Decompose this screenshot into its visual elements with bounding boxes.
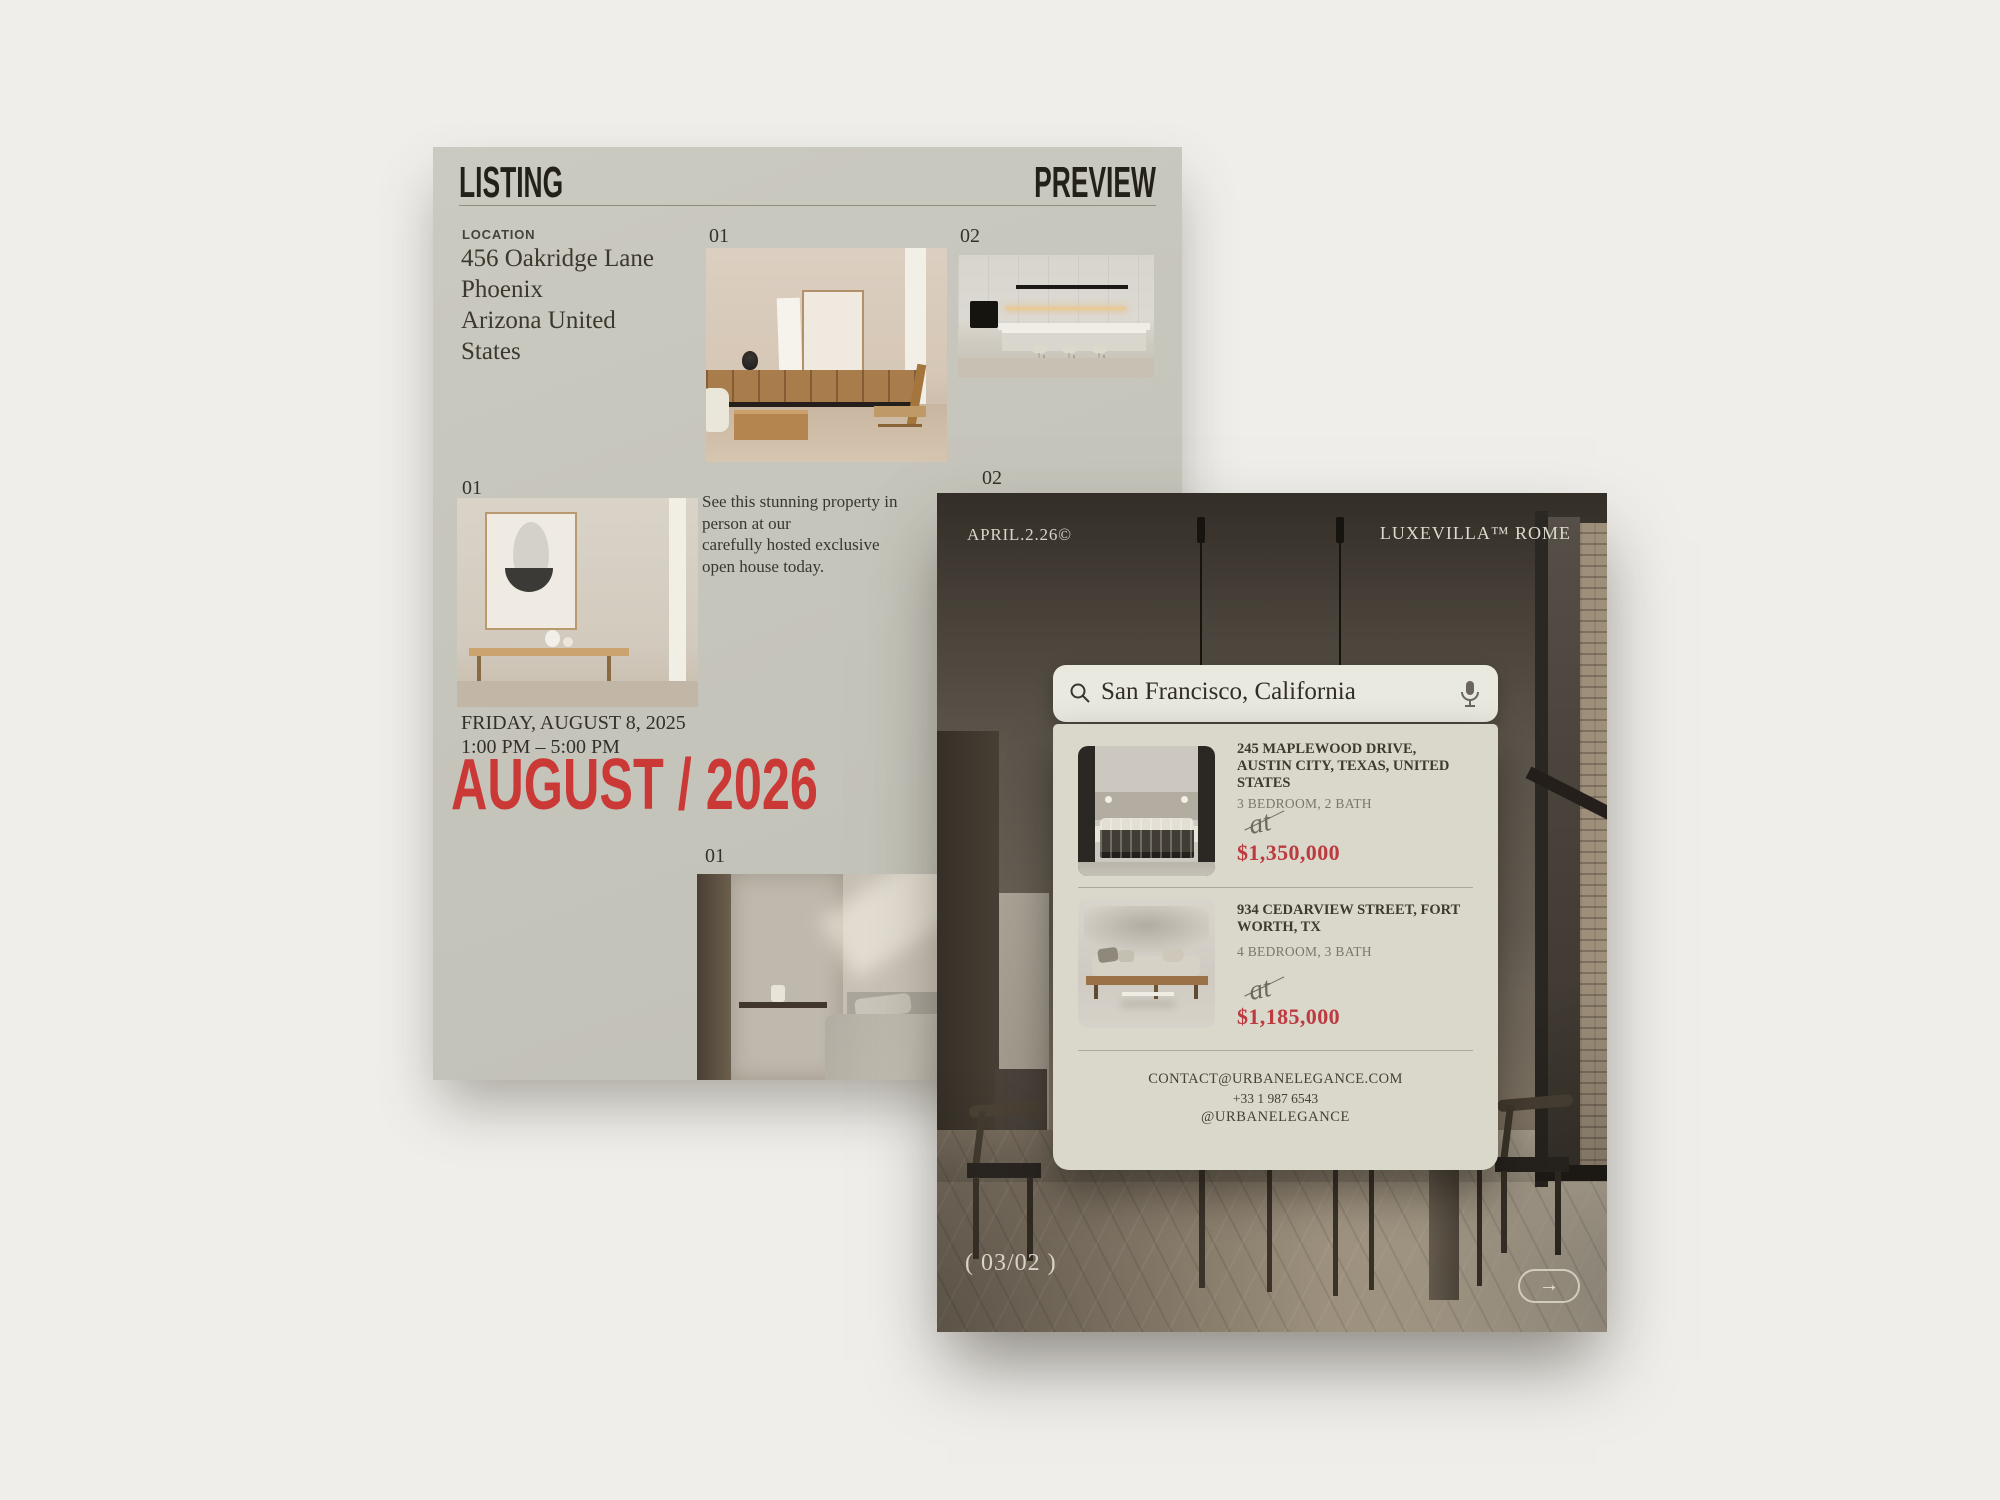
listing-address[interactable]: 934 CEDARVIEW STREET, FORT WORTH, TX — [1237, 902, 1487, 936]
open-house-description: See this stunning property in person at … — [702, 491, 944, 577]
row-divider — [1078, 887, 1473, 888]
row-divider — [1078, 1050, 1473, 1051]
figure-label-living-room: 01 — [709, 225, 729, 248]
property-app-card: APRIL.2.26© LUXEVILLA™ ROME San Francisc… — [937, 493, 1607, 1332]
photo-kitchen — [958, 255, 1154, 378]
photo-living-room — [706, 248, 947, 462]
contact-handle: @URBANELEGANCE — [1053, 1108, 1498, 1127]
header-divider — [459, 205, 1156, 206]
flyer-title-preview: PREVIEW — [1034, 161, 1156, 205]
event-date: FRIDAY, AUGUST 8, 2025 — [461, 711, 686, 735]
issue-date-text: APRIL.2.26© — [967, 525, 1072, 545]
brand-text: LUXEVILLA™ ROME — [1380, 523, 1571, 544]
location-address: 456 Oakridge Lane Phoenix Arizona United… — [461, 243, 654, 367]
search-input-value[interactable]: San Francisco, California — [1101, 678, 1356, 706]
photo-hallway — [457, 498, 698, 707]
figure-label-kitchen: 02 — [960, 225, 980, 248]
listing-price: $1,350,000 — [1237, 840, 1340, 866]
address-line: Arizona United — [461, 305, 654, 336]
listing-thumbnail-bedroom[interactable] — [1078, 746, 1215, 876]
address-line: States — [461, 336, 654, 367]
arrow-right-icon: → — [1539, 1274, 1559, 1296]
listing-address[interactable]: 245 MAPLEWOOD DRIVE, AUSTIN CITY, TEXAS,… — [1237, 741, 1487, 792]
design-canvas: LISTING PREVIEW LOCATION 456 Oakridge La… — [0, 0, 2000, 1500]
event-headline: AUGUST / 2026 — [451, 751, 818, 818]
figure-label-bedroom: 01 — [705, 845, 725, 868]
flyer-title-listing: LISTING — [459, 161, 563, 205]
results-panel: 245 MAPLEWOOD DRIVE, AUSTIN CITY, TEXAS,… — [1053, 724, 1498, 1170]
figure-label-hidden: 02 — [982, 467, 1002, 490]
page-indicator: ( 03/02 ) — [965, 1250, 1057, 1277]
address-line: 456 Oakridge Lane — [461, 243, 654, 274]
next-button[interactable]: → — [1518, 1269, 1580, 1303]
listing-thumbnail-sofa[interactable] — [1078, 898, 1215, 1028]
figure-label-hallway: 01 — [462, 477, 482, 500]
contact-email: CONTACT@URBANELEGANCE.COM — [1053, 1070, 1498, 1089]
listing-specs: 4 BEDROOM, 3 BATH — [1237, 944, 1372, 960]
contact-block: CONTACT@URBANELEGANCE.COM +33 1 987 6543… — [1053, 1070, 1498, 1127]
search-icon[interactable] — [1068, 681, 1092, 705]
location-label: LOCATION — [462, 227, 535, 242]
address-line: Phoenix — [461, 274, 654, 305]
photo-bedroom — [697, 874, 964, 1080]
microphone-icon[interactable] — [1459, 679, 1481, 709]
price-prefix-script: at — [1246, 972, 1274, 1008]
contact-phone: +33 1 987 6543 — [1053, 1089, 1498, 1108]
listing-price: $1,185,000 — [1237, 1004, 1340, 1030]
search-bar[interactable]: San Francisco, California — [1053, 665, 1498, 722]
